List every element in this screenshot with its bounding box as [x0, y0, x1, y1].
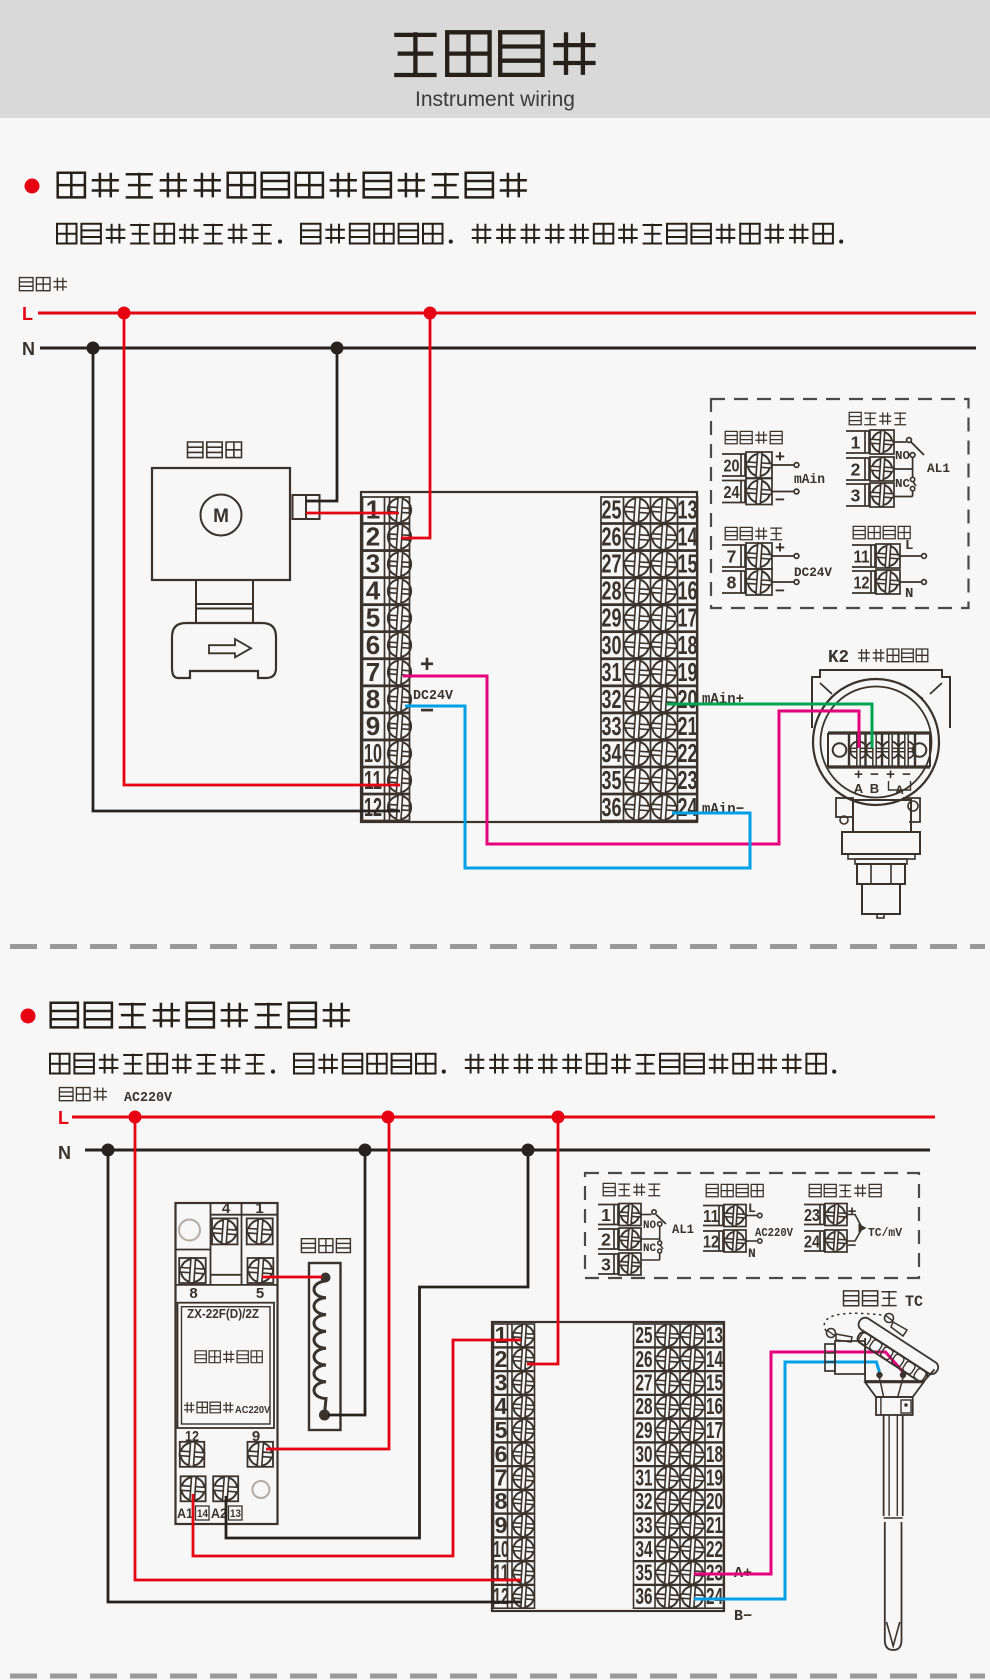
- svg-text:AC220V: AC220V: [755, 1226, 794, 1240]
- svg-text:1: 1: [495, 1322, 508, 1348]
- svg-text:30: 30: [636, 1441, 653, 1467]
- svg-text:1: 1: [601, 1205, 611, 1225]
- svg-text:AL1: AL1: [927, 461, 950, 476]
- svg-text:NO: NO: [643, 1220, 656, 1232]
- svg-text:29: 29: [602, 603, 622, 633]
- svg-text:12: 12: [703, 1232, 719, 1252]
- svg-text:5: 5: [495, 1417, 508, 1443]
- svg-text:4: 4: [495, 1393, 508, 1419]
- svg-text:B−: B−: [734, 1608, 752, 1625]
- svg-text:6: 6: [495, 1441, 508, 1467]
- svg-text:−: −: [902, 766, 911, 783]
- svg-text:8: 8: [727, 573, 737, 593]
- svg-text:NC: NC: [895, 477, 910, 491]
- svg-text:22: 22: [678, 738, 698, 768]
- svg-text:7: 7: [727, 547, 737, 567]
- svg-text:3: 3: [366, 549, 380, 579]
- svg-text:4: 4: [222, 1200, 231, 1217]
- svg-text:5: 5: [256, 1285, 264, 1302]
- svg-text:24: 24: [804, 1232, 820, 1252]
- svg-text:27: 27: [602, 549, 622, 579]
- svg-text:10: 10: [364, 738, 382, 768]
- svg-text:A: A: [854, 781, 864, 796]
- svg-text:L: L: [22, 304, 33, 324]
- svg-text:+: +: [848, 1203, 857, 1220]
- svg-text:35: 35: [602, 765, 622, 795]
- svg-text:2: 2: [851, 460, 861, 480]
- svg-text:+: +: [886, 766, 895, 783]
- svg-text:32: 32: [636, 1488, 653, 1514]
- svg-text:29: 29: [636, 1417, 653, 1443]
- svg-text:21: 21: [706, 1512, 723, 1538]
- svg-text:25: 25: [602, 495, 622, 525]
- svg-text:L: L: [748, 1201, 756, 1216]
- svg-text:9: 9: [495, 1512, 508, 1538]
- svg-text:24: 24: [724, 482, 740, 502]
- svg-text:3: 3: [851, 486, 861, 506]
- svg-text:26: 26: [602, 522, 622, 552]
- svg-text:36: 36: [636, 1583, 653, 1609]
- svg-text:1: 1: [851, 433, 861, 453]
- svg-text:21: 21: [678, 711, 698, 741]
- svg-text:1: 1: [366, 495, 380, 525]
- svg-text:35: 35: [636, 1560, 653, 1586]
- svg-text:20: 20: [678, 684, 698, 714]
- svg-text:12: 12: [854, 573, 870, 593]
- svg-text:34: 34: [636, 1536, 653, 1562]
- svg-text:N: N: [22, 339, 35, 359]
- svg-text:8: 8: [366, 684, 380, 714]
- svg-text:11: 11: [493, 1560, 509, 1586]
- svg-text:11: 11: [364, 765, 382, 795]
- svg-text:3: 3: [495, 1370, 508, 1396]
- svg-text:+: +: [775, 538, 785, 557]
- svg-text:12: 12: [493, 1583, 509, 1609]
- svg-text:31: 31: [636, 1465, 653, 1491]
- svg-text:2: 2: [366, 522, 380, 552]
- svg-text:14: 14: [678, 522, 698, 552]
- svg-text:13: 13: [230, 1508, 241, 1520]
- svg-text:A1: A1: [177, 1505, 193, 1521]
- svg-text:36: 36: [602, 792, 622, 822]
- svg-text:−: −: [420, 697, 434, 724]
- svg-text:11: 11: [703, 1206, 719, 1226]
- svg-text:25: 25: [636, 1322, 653, 1348]
- svg-text:27: 27: [636, 1370, 653, 1396]
- svg-text:14: 14: [197, 1508, 209, 1520]
- svg-text:−: −: [775, 581, 785, 600]
- svg-text:14: 14: [706, 1346, 723, 1372]
- svg-text:A: A: [895, 783, 904, 797]
- svg-text:16: 16: [678, 576, 698, 606]
- svg-text:6: 6: [366, 630, 380, 660]
- svg-text:TC: TC: [905, 1293, 923, 1311]
- svg-text:33: 33: [636, 1512, 653, 1538]
- svg-text:NC: NC: [643, 1243, 656, 1255]
- svg-text:N: N: [748, 1246, 756, 1261]
- svg-text:2: 2: [601, 1230, 611, 1250]
- svg-text:31: 31: [602, 657, 622, 687]
- svg-text:8: 8: [495, 1488, 508, 1514]
- svg-text:NO: NO: [895, 449, 910, 463]
- svg-text:24: 24: [678, 792, 698, 822]
- svg-text:+: +: [420, 651, 434, 678]
- svg-text:19: 19: [678, 657, 698, 687]
- svg-text:mAin−: mAin−: [702, 801, 744, 818]
- svg-text:ZX-22F(D)/2Z: ZX-22F(D)/2Z: [187, 1307, 259, 1321]
- svg-text:1: 1: [255, 1200, 263, 1217]
- svg-text:11: 11: [854, 547, 870, 567]
- svg-text:17: 17: [706, 1417, 723, 1443]
- svg-text:28: 28: [636, 1393, 653, 1419]
- svg-text:N: N: [58, 1143, 71, 1163]
- svg-text:3: 3: [601, 1255, 611, 1275]
- svg-text:8: 8: [189, 1285, 197, 1302]
- svg-text:7: 7: [366, 657, 380, 687]
- svg-text:13: 13: [706, 1322, 723, 1348]
- svg-text:15: 15: [678, 549, 698, 579]
- svg-text:5: 5: [366, 603, 380, 633]
- svg-text:9: 9: [366, 711, 380, 741]
- svg-text:16: 16: [706, 1393, 723, 1419]
- svg-text:10: 10: [493, 1536, 509, 1562]
- svg-text:18: 18: [678, 630, 698, 660]
- svg-text:7: 7: [495, 1465, 508, 1491]
- svg-text:mAin: mAin: [794, 472, 825, 488]
- svg-text:23: 23: [678, 765, 698, 795]
- svg-text:AC220V: AC220V: [124, 1090, 173, 1106]
- svg-text:12: 12: [364, 792, 382, 822]
- svg-text:15: 15: [706, 1370, 723, 1396]
- svg-text:L: L: [905, 538, 913, 554]
- svg-text:17: 17: [678, 603, 698, 633]
- svg-text:34: 34: [602, 738, 622, 768]
- svg-text:K2: K2: [828, 648, 849, 668]
- svg-text:AC220V: AC220V: [235, 1404, 270, 1416]
- svg-text:26: 26: [636, 1346, 653, 1372]
- svg-text:4: 4: [366, 576, 381, 606]
- svg-text:30: 30: [602, 630, 622, 660]
- svg-text:AL1: AL1: [672, 1222, 694, 1237]
- svg-text:TC/mV: TC/mV: [868, 1226, 903, 1240]
- svg-text:−: −: [775, 490, 785, 509]
- svg-text:DC24V: DC24V: [794, 565, 832, 580]
- svg-text:19: 19: [706, 1465, 723, 1491]
- svg-text:20: 20: [706, 1488, 723, 1514]
- svg-text:N: N: [905, 586, 913, 602]
- svg-text:20: 20: [724, 456, 740, 476]
- svg-text:32: 32: [602, 684, 622, 714]
- svg-text:22: 22: [706, 1536, 723, 1562]
- svg-text:28: 28: [602, 576, 622, 606]
- svg-text:18: 18: [706, 1441, 723, 1467]
- svg-text:33: 33: [602, 711, 622, 741]
- svg-text:M: M: [213, 506, 229, 527]
- svg-text:2: 2: [495, 1346, 508, 1372]
- svg-text:Instrument wiring: Instrument wiring: [415, 88, 575, 111]
- svg-text:23: 23: [804, 1205, 820, 1225]
- svg-text:+: +: [775, 447, 785, 466]
- svg-text:24: 24: [706, 1583, 723, 1609]
- svg-text:B: B: [870, 781, 879, 796]
- svg-text:L: L: [58, 1108, 69, 1128]
- svg-text:13: 13: [678, 495, 698, 525]
